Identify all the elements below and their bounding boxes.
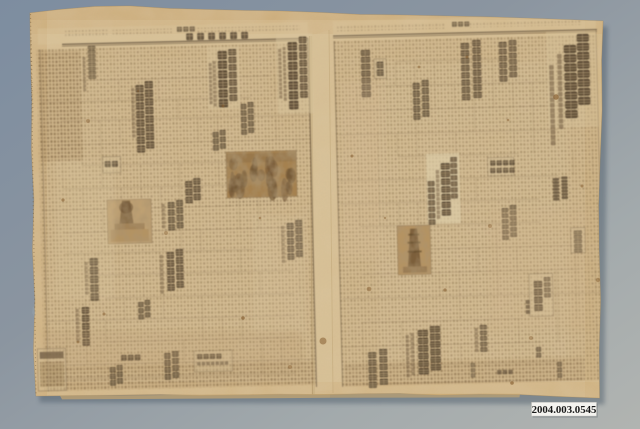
svg-text:2004.003.0545: 2004.003.0545 <box>532 404 597 416</box>
